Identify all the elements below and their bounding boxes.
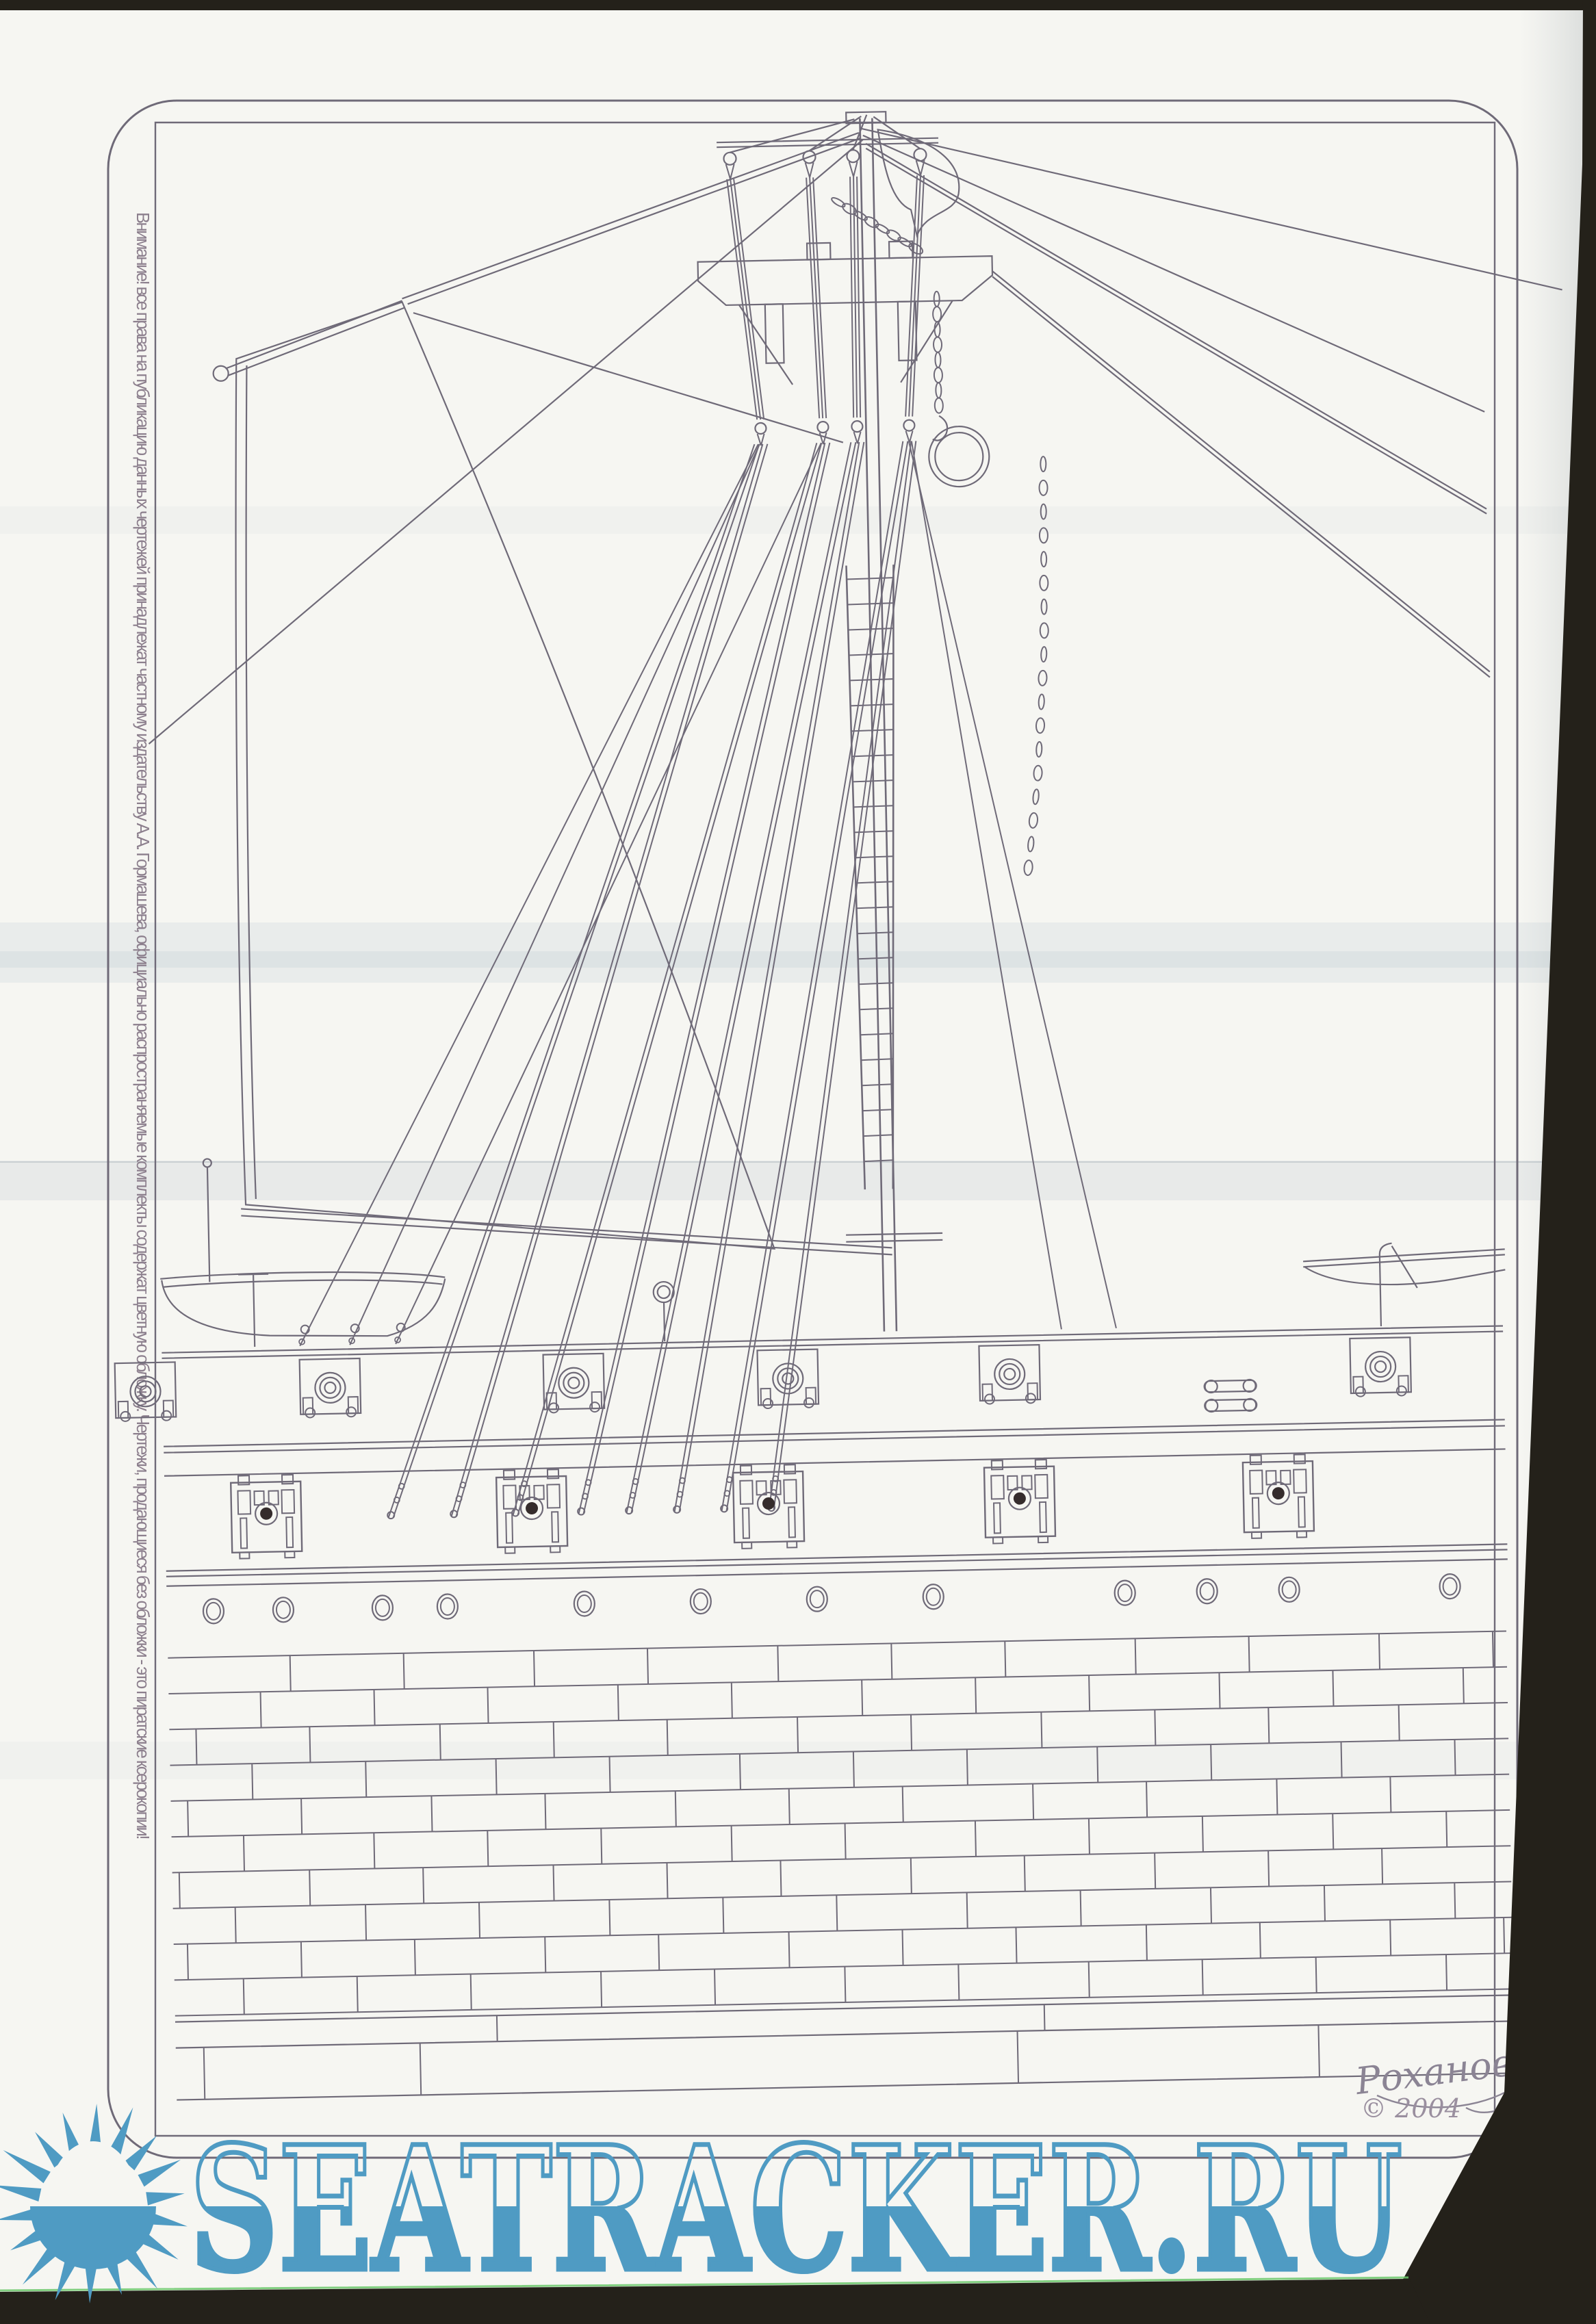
plank-joint (188, 1944, 188, 1980)
plank-joint (967, 1749, 968, 1785)
plank-joint (1146, 1781, 1147, 1817)
plank-joint (780, 1861, 781, 1896)
plank-joint (235, 1907, 236, 1943)
plank-joint (479, 1902, 480, 1938)
plank-joint (732, 1826, 732, 1861)
plank-joint (975, 1821, 976, 1857)
plank-joint (845, 1967, 845, 2002)
plank-joint (309, 1727, 310, 1762)
plank-joint (1033, 1784, 1033, 1820)
plank-joint (1316, 1957, 1317, 1993)
plank-joint (440, 1724, 441, 1759)
plank-joint (374, 1833, 374, 1868)
plank-joint (975, 1677, 976, 1713)
plank-joint (601, 1972, 602, 2007)
plank-joint (836, 1895, 837, 1931)
plank-joint (365, 1905, 366, 1940)
plank-joint (618, 1685, 619, 1720)
plank-joint (1202, 1816, 1203, 1852)
plank-joint (431, 1796, 432, 1831)
seatracker-watermark: SEATRACKER.RU SEATRACKER.RU (0, 2104, 1402, 2310)
plank-joint (1202, 1959, 1203, 1995)
plank-joint (1025, 1855, 1025, 1891)
margin-copyright-text: Внимание! все права на публикацию данных… (133, 212, 152, 1841)
plank-joint (903, 1786, 903, 1822)
plank-joint (1260, 1922, 1261, 1958)
plank-joint (667, 1863, 667, 1898)
plank-joint (609, 1900, 610, 1935)
plank-joint (967, 1892, 968, 1928)
plank-joint (1249, 1636, 1250, 1672)
plank-joint (1382, 1848, 1382, 1884)
plank-joint (415, 1939, 415, 1975)
plank-joint (797, 1717, 798, 1753)
plank-joint (777, 1646, 778, 1681)
plank-joint (723, 1898, 723, 1933)
plank-joint (301, 1941, 302, 1977)
plank-joint (1446, 1811, 1447, 1847)
plank-joint (290, 1655, 291, 1691)
plank-joint (658, 1935, 659, 1970)
plank-joint (357, 1976, 358, 2012)
plank-joint (301, 1798, 302, 1834)
plank-joint (261, 1692, 261, 1727)
plank-joint (1454, 1740, 1455, 1775)
plank-joint (853, 1752, 854, 1787)
plank-joint (1211, 1744, 1211, 1780)
plank-joint (891, 1643, 892, 1679)
plank-joint (487, 1831, 488, 1866)
plank-joint (188, 1800, 188, 1836)
plank-joint (1005, 1641, 1005, 1677)
plank-joint (179, 1872, 180, 1908)
plank-joint (244, 1835, 244, 1871)
scan-edge-top (0, 0, 1596, 10)
plank-joint (667, 1720, 668, 1755)
plank-joint (1504, 1918, 1504, 1953)
plank-joint (1333, 1813, 1333, 1849)
plank-joint (365, 1761, 366, 1797)
plank-joint (554, 1865, 554, 1900)
plank-joint (1219, 1673, 1220, 1708)
plank-joint (252, 1764, 253, 1799)
plank-joint (601, 1829, 602, 1864)
plank-joint (1155, 1853, 1155, 1889)
plank-joint (1146, 1925, 1147, 1961)
plank-joint (1399, 1705, 1400, 1740)
plank-joint (1333, 1670, 1333, 1706)
plank-joint (1081, 1890, 1081, 1926)
plank-joint (374, 1690, 375, 1725)
plank-joint (1463, 1668, 1464, 1703)
plank-joint (789, 1789, 790, 1824)
plank-joint (1135, 1638, 1136, 1674)
plank-joint (1268, 1850, 1269, 1886)
plank-joint (1454, 1883, 1455, 1918)
plank-joint (1390, 1920, 1391, 1955)
plank-joint (497, 2015, 498, 2041)
plank-joint (1446, 1954, 1447, 1990)
plank-joint (1044, 2004, 1045, 2030)
plank-joint (244, 1978, 244, 2014)
plank-joint (545, 1937, 545, 1972)
plank-joint (1155, 1709, 1155, 1745)
plank-joint (1089, 1962, 1090, 1998)
plank-joint (1041, 1712, 1042, 1748)
plank-joint (1493, 1631, 1493, 1667)
plank-joint (911, 1858, 912, 1894)
plank-joint (732, 1682, 732, 1718)
plank-joint (1211, 1887, 1211, 1923)
ship-side-elevation-scan: Внимание! все права на публикацию данных… (0, 0, 1596, 2324)
plank-joint (789, 1932, 790, 1967)
plank-joint (845, 1823, 846, 1859)
plank-joint (534, 1651, 535, 1686)
plank-joint (1089, 1818, 1090, 1854)
plank-joint (1097, 1746, 1098, 1782)
plank-joint (1276, 1779, 1277, 1814)
plank-joint (196, 1729, 196, 1765)
plank-joint (487, 1688, 488, 1723)
plank-joint (471, 1974, 472, 2010)
plank-joint (1268, 1707, 1269, 1743)
plank-joint (675, 1791, 676, 1826)
plank-joint (1379, 1634, 1380, 1669)
plank-joint (545, 1794, 545, 1829)
plank-joint (647, 1649, 648, 1684)
plank-joint (423, 1868, 424, 1903)
plank-joint (740, 1754, 741, 1790)
plank-joint (958, 1964, 959, 2000)
plank-joint (1390, 1777, 1391, 1812)
plank-joint (1324, 1885, 1325, 1921)
plank-joint (715, 1969, 715, 2004)
plank-joint (911, 1715, 912, 1751)
plank-joint (1089, 1675, 1090, 1711)
plank-joint (1341, 1742, 1342, 1777)
plank-joint (610, 1757, 610, 1792)
plank-joint (554, 1722, 554, 1757)
scanned-blueprint-page: Внимание! все права на публикацию данных… (0, 0, 1596, 2324)
plank-joint (309, 1870, 310, 1905)
plank-joint (903, 1930, 903, 1965)
plank-joint (404, 1653, 404, 1689)
plank-joint (496, 1759, 497, 1794)
plank-joint (1016, 1927, 1016, 1963)
plank-joint (862, 1680, 862, 1716)
